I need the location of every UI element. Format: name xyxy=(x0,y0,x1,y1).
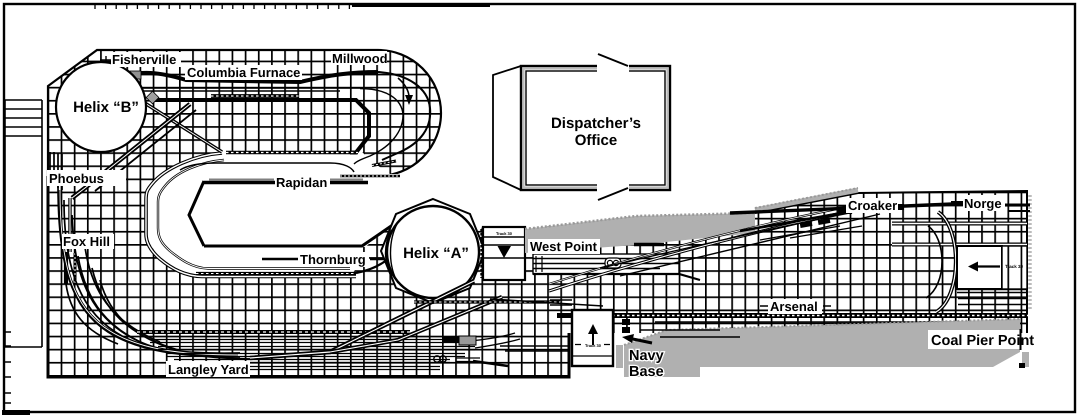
svg-text:Rapidan: Rapidan xyxy=(276,175,327,190)
svg-text:Office: Office xyxy=(575,132,618,149)
svg-text:Columbia Furnace: Columbia Furnace xyxy=(187,65,300,80)
svg-text:Croaker: Croaker xyxy=(848,198,897,213)
svg-text:Base: Base xyxy=(629,364,664,380)
svg-text:Fox Hill: Fox Hill xyxy=(63,234,110,249)
svg-text:Helix “A”: Helix “A” xyxy=(403,245,469,262)
svg-text:Langley Yard: Langley Yard xyxy=(168,362,249,377)
svg-text:Coal Pier Point: Coal Pier Point xyxy=(931,333,1034,349)
svg-text:Norge: Norge xyxy=(964,196,1002,211)
svg-text:Arsenal: Arsenal xyxy=(770,299,818,314)
svg-text:Millwood: Millwood xyxy=(332,51,388,66)
svg-text:Track 30: Track 30 xyxy=(585,343,602,348)
svg-text:West Point: West Point xyxy=(530,239,598,254)
svg-text:Phoebus: Phoebus xyxy=(49,171,104,186)
svg-text:Track 30: Track 30 xyxy=(496,231,513,236)
svg-text:Fisherville: Fisherville xyxy=(112,52,176,67)
svg-text:Helix “B”: Helix “B” xyxy=(73,99,139,116)
svg-text:Track 30: Track 30 xyxy=(1005,264,1024,269)
svg-text:Navy: Navy xyxy=(629,348,664,364)
svg-text:Thornburg: Thornburg xyxy=(300,252,366,267)
svg-text:Dispatcher’s: Dispatcher’s xyxy=(551,115,641,132)
